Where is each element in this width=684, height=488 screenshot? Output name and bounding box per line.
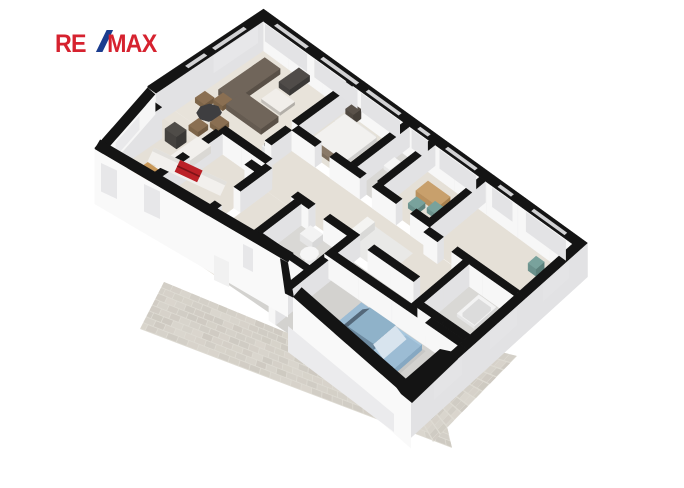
svg-text:RE: RE [55,30,86,58]
svg-text:MAX: MAX [107,30,157,58]
